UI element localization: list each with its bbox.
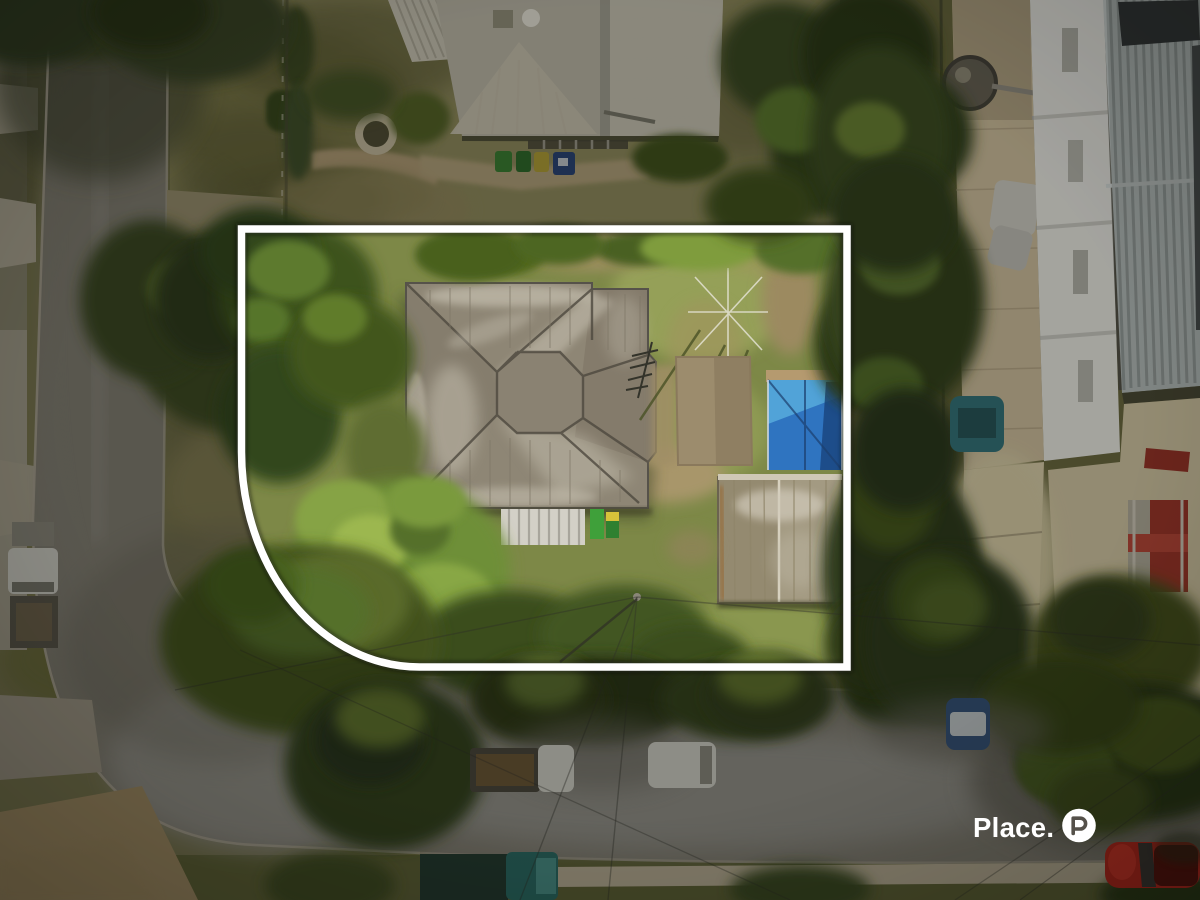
svg-text:Place.: Place.: [973, 812, 1054, 843]
